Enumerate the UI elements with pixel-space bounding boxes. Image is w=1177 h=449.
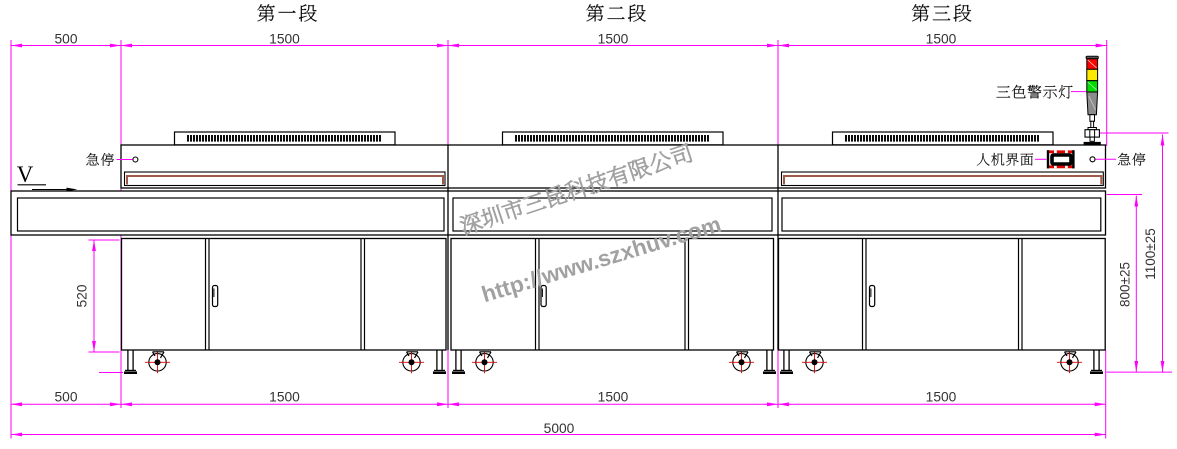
svg-text:1500: 1500 (926, 32, 957, 47)
svg-text:5000: 5000 (544, 421, 575, 436)
svg-text:1500: 1500 (926, 390, 957, 405)
svg-text:1500: 1500 (598, 32, 629, 47)
svg-text:520: 520 (75, 284, 90, 307)
svg-text:800±25: 800±25 (1118, 262, 1133, 307)
svg-text:500: 500 (54, 390, 77, 405)
svg-text:1500: 1500 (269, 32, 300, 47)
svg-text:1500: 1500 (598, 390, 629, 405)
svg-text:V: V (17, 162, 34, 187)
svg-text:1100±25: 1100±25 (1143, 228, 1158, 279)
svg-text:500: 500 (54, 32, 77, 47)
svg-text:1500: 1500 (269, 390, 300, 405)
